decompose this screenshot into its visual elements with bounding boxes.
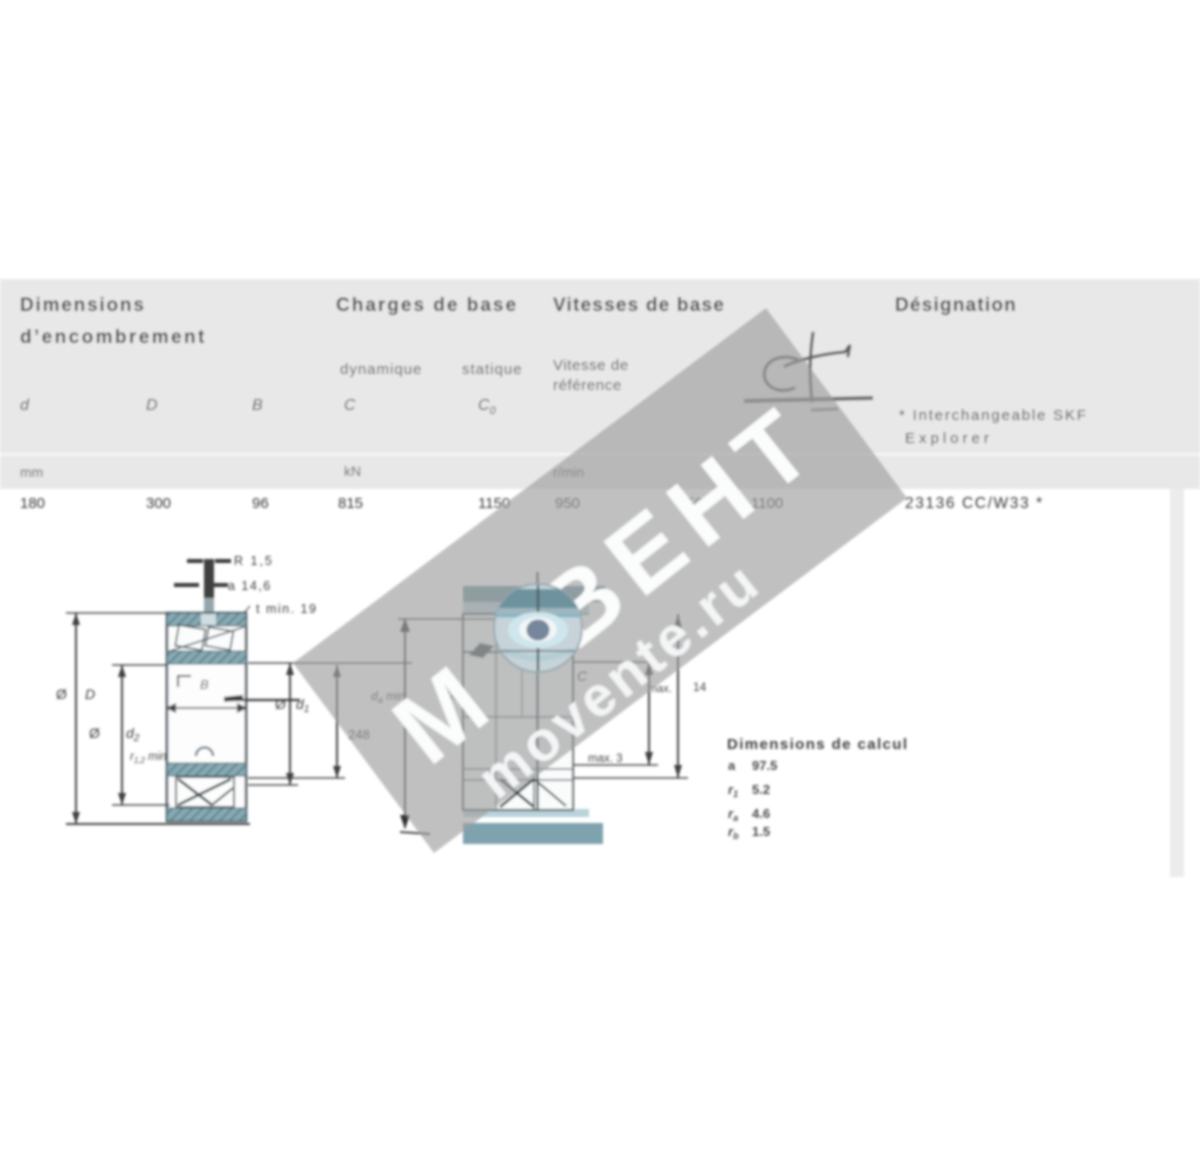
svg-text:a 14,6: a 14,6 bbox=[228, 579, 272, 593]
svg-text:d2: d2 bbox=[126, 725, 140, 744]
svg-text:Vitesse de: Vitesse de bbox=[553, 357, 629, 374]
svg-text:Désignation: Désignation bbox=[895, 295, 1017, 316]
svg-text:815: 815 bbox=[338, 495, 363, 512]
svg-text:Charges de base: Charges de base bbox=[336, 295, 518, 316]
svg-text:Ø: Ø bbox=[89, 725, 100, 741]
svg-text:23136 CC/W33 *: 23136 CC/W33 * bbox=[905, 495, 1044, 512]
svg-text:référence: référence bbox=[553, 377, 622, 394]
svg-text:R 1,5: R 1,5 bbox=[234, 554, 274, 568]
svg-text:mm: mm bbox=[20, 464, 43, 480]
svg-text:Dimensions: Dimensions bbox=[20, 295, 146, 316]
svg-text:kN: kN bbox=[344, 463, 361, 479]
svg-text:C: C bbox=[344, 397, 356, 414]
svg-text:statique: statique bbox=[462, 361, 523, 378]
svg-text:Ø: Ø bbox=[275, 696, 286, 712]
svg-text:5.2: 5.2 bbox=[752, 782, 770, 797]
svg-text:14: 14 bbox=[693, 680, 707, 694]
svg-text:Ø: Ø bbox=[56, 686, 67, 702]
svg-text:dynamique: dynamique bbox=[340, 361, 422, 378]
svg-text:rb: rb bbox=[728, 824, 739, 841]
svg-text:1.5: 1.5 bbox=[752, 824, 770, 839]
svg-text:180: 180 bbox=[20, 495, 45, 512]
svg-text:D: D bbox=[146, 397, 158, 414]
svg-text:4.6: 4.6 bbox=[752, 806, 770, 821]
svg-text:B: B bbox=[200, 677, 209, 692]
svg-text:ra: ra bbox=[728, 806, 738, 823]
svg-text:Vitesses de base: Vitesses de base bbox=[553, 295, 725, 316]
svg-text:Dimensions de calcul: Dimensions de calcul bbox=[727, 736, 908, 753]
svg-text:D: D bbox=[85, 686, 95, 702]
svg-text:r1,2 min: r1,2 min bbox=[130, 751, 167, 765]
svg-text:t min. 19: t min. 19 bbox=[256, 602, 317, 616]
svg-text:96: 96 bbox=[252, 495, 269, 512]
svg-text:Explorer: Explorer bbox=[905, 430, 993, 447]
svg-text:97.5: 97.5 bbox=[752, 758, 777, 773]
svg-text:d1: d1 bbox=[296, 696, 309, 715]
svg-text:B: B bbox=[252, 397, 263, 414]
svg-text:d: d bbox=[20, 397, 30, 414]
svg-text:a: a bbox=[728, 758, 736, 773]
svg-text:max. 3: max. 3 bbox=[588, 753, 623, 765]
svg-text:300: 300 bbox=[146, 495, 171, 512]
svg-text:d’encombrement: d’encombrement bbox=[20, 327, 207, 348]
svg-text:* Interchangeable SKF: * Interchangeable SKF bbox=[899, 407, 1088, 424]
svg-text:r1: r1 bbox=[728, 782, 738, 799]
